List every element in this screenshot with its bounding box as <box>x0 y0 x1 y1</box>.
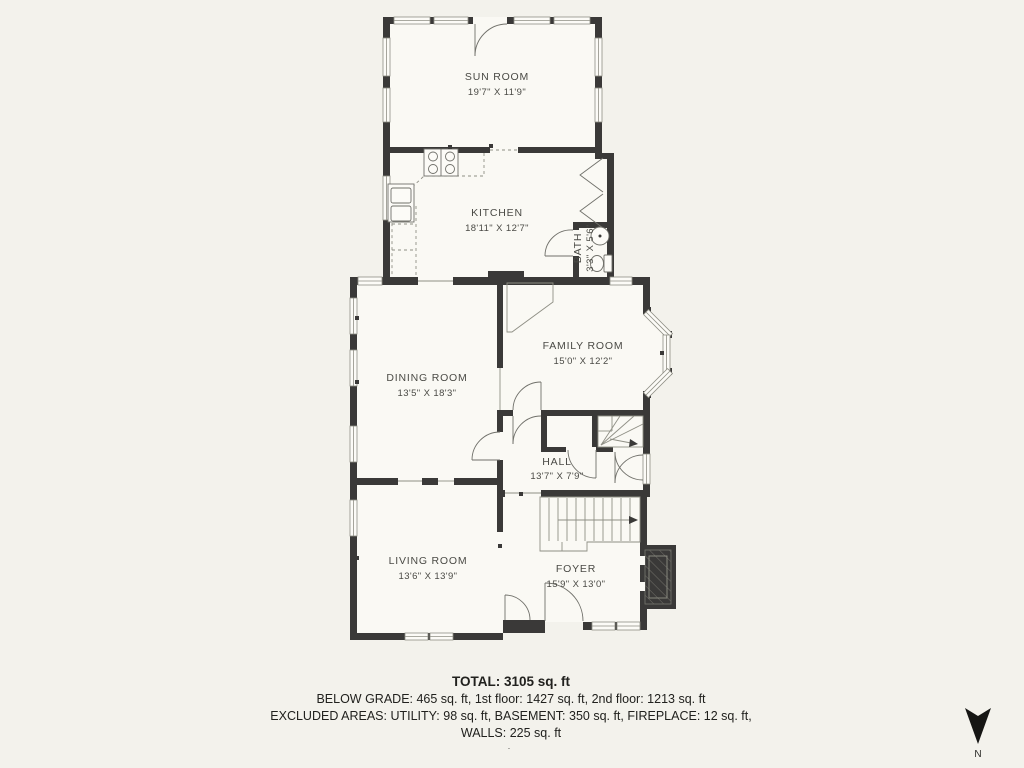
footer-line-1: BELOW GRADE: 465 sq. ft, 1st floor: 1427… <box>316 692 706 706</box>
room-label-living-room: LIVING ROOM <box>389 555 468 567</box>
room-dims-living-room: 13'6" X 13'9" <box>399 571 458 582</box>
room-dims-sun-room: 19'7" X 11'9" <box>468 87 526 98</box>
room-label-dining-room: DINING ROOM <box>386 372 467 384</box>
footer-line-2: EXCLUDED AREAS: UTILITY: 98 sq. ft, BASE… <box>270 709 751 723</box>
kitchen-sink-icon <box>388 184 414 222</box>
room-label-hall: HALL <box>542 456 571 468</box>
room-label-bath: BATH <box>572 233 584 263</box>
room-dims-kitchen: 18'11" X 12'7" <box>465 223 529 234</box>
room-dims-family-room: 15'0" X 12'2" <box>554 356 613 367</box>
fireplace <box>640 545 676 609</box>
room-label-foyer: FOYER <box>556 563 596 575</box>
room-label-sun-room: SUN ROOM <box>465 71 529 83</box>
room-dims-hall: 13'7" X 7'9" <box>530 471 583 482</box>
floor-plan-page: SUN ROOM 19'7" X 11'9" KITCHEN 18'11" X … <box>0 0 1024 768</box>
room-dims-bath: 3'3" X 5'6" <box>585 224 596 272</box>
stove-icon <box>424 149 458 176</box>
compass-label: N <box>974 749 981 760</box>
room-label-family-room: FAMILY ROOM <box>543 340 624 352</box>
footer-line-3: WALLS: 225 sq. ft <box>461 726 562 740</box>
room-dims-dining-room: 13'5" X 18'3" <box>398 388 457 399</box>
floor-plan-canvas: SUN ROOM 19'7" X 11'9" KITCHEN 18'11" X … <box>0 0 1024 768</box>
footer-dot: . <box>508 742 510 751</box>
footer-total: TOTAL: 3105 sq. ft <box>452 674 571 689</box>
room-label-kitchen: KITCHEN <box>471 207 523 219</box>
room-dims-foyer: 15'9" X 13'0" <box>547 579 606 590</box>
